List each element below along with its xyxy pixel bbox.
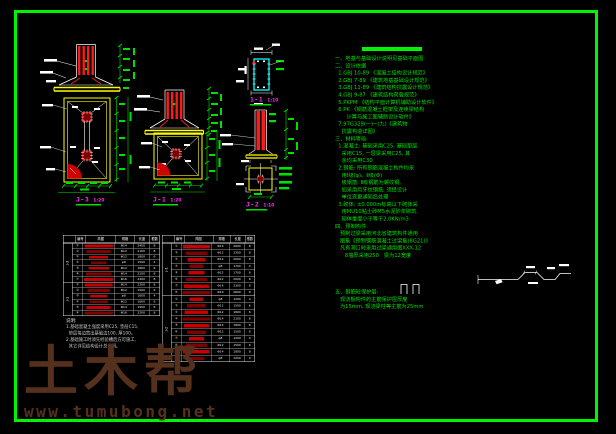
general-note-line: 5.PKPM 《结构平面计算机辅助设计软件》 — [335, 99, 505, 106]
schedule-cell: 8 — [149, 310, 160, 315]
general-note-line: 4.GBJ 9-87 《建筑结构荷载规范》 — [335, 91, 505, 98]
general-note-line: 2.GBJ 7-89 《建筑地基基础设计规范》 — [335, 77, 505, 84]
rebar-bar — [85, 284, 113, 287]
rebar-bar — [190, 298, 203, 301]
drawing-scale-text: 1:20 — [93, 198, 104, 203]
drawing-scale-text: 1:10 — [267, 98, 278, 103]
rebar-bar — [182, 291, 210, 294]
general-note-line — [335, 274, 505, 281]
general-note-line: 砌体重度小于等于2.0KN/m3 — [335, 216, 505, 223]
drawing-sheet: 一、地基与基础设计说明见基础平面图二、设计依据 1.GBJ 10-89 《混凝土… — [0, 0, 616, 434]
schedule-header-cell — [163, 236, 175, 243]
general-note-line: 五、钢筋砼保护层: — [335, 289, 505, 296]
rebar-bar — [89, 300, 108, 303]
general-note-line: 1.混凝土: 基础采用C25, 基础垫层 — [335, 143, 505, 150]
rebar-bar — [88, 267, 109, 270]
label-underline — [250, 104, 271, 106]
schedule-row: ⑥Φ1622008 — [73, 310, 160, 316]
label-underline — [246, 209, 267, 211]
rebar-bar — [184, 284, 209, 287]
watermark: 土木帮 www.tumubong.net — [24, 344, 218, 421]
j1-plan-drawing — [139, 131, 221, 192]
rebar-bar — [89, 256, 108, 259]
schedule-header-cell — [64, 236, 76, 243]
rebar-bar — [188, 271, 204, 274]
label-underline — [76, 204, 101, 206]
schedule-header-row: 编号简图规格长度根数 — [64, 236, 160, 244]
general-note-line: 8墙厚采用250 梁为12宽度 — [335, 252, 505, 259]
schedule-row: ⑤Φ1217006 — [172, 269, 255, 276]
schedule-group-label-text: J-1 — [66, 297, 70, 301]
schedule-cell: Φ16 — [114, 310, 133, 315]
schedule-header-cell: 编号 — [174, 236, 184, 243]
rebar-bar — [183, 245, 210, 248]
general-note-line: 四、预制构件: — [335, 223, 505, 230]
general-note-line: 采用C15, 一层梁采用C25, 其 — [335, 150, 505, 157]
rebar-sketch-cell — [83, 310, 115, 315]
section-1-1-detail — [236, 44, 284, 96]
rebar-bar — [187, 304, 205, 307]
general-note-line: 用MU10粘土砖M5水泥砂浆砌筑, — [335, 208, 505, 215]
general-note-line: 级钢筋, Ⅱ级钢筋为螺纹钢, — [335, 179, 505, 186]
rebar-bar — [188, 258, 206, 261]
schedule-header-cell: 编号 — [75, 236, 85, 243]
rebar-bar — [86, 250, 110, 253]
schedule-header-cell: 长度 — [230, 236, 245, 243]
schedule-row: ④φ817004 — [172, 263, 255, 270]
schedule-cell: 2200 — [133, 310, 149, 315]
schedule-group: J-1①Φ1422008②Φ1219006③φ816004④Φ1216006⑤Φ… — [64, 282, 160, 316]
schedule-row: ③Φ1220006 — [172, 256, 255, 263]
rebar-bar — [86, 272, 111, 275]
drawing-label-text: J-3 — [76, 196, 89, 204]
drawing-label-j2: J-21:10 — [246, 201, 348, 220]
general-note-line: 现浇板构件的主筋保护层厚度 — [335, 296, 505, 303]
rebar-bar — [91, 261, 107, 264]
general-note-line: 余均采用C30 — [335, 157, 505, 164]
rebar-bar — [84, 245, 113, 248]
drawing-scale-text: 1:10 — [263, 203, 274, 208]
general-note-line: 6.PK 《钢筋混凝土框架及连续梁结构 — [335, 106, 505, 113]
schedule-row: ②Φ1223008 — [172, 250, 255, 257]
notes-title-bar — [362, 47, 422, 51]
schedule-row: ③Φ1218006 — [172, 309, 255, 316]
schedule-group-label-text: J-3 — [66, 261, 70, 265]
general-notes-block: 一、地基与基础设计说明见基础平面图二、设计依据 1.GBJ 10-89 《混凝土… — [335, 55, 495, 434]
rebar-bar — [189, 265, 203, 268]
schedule-header-cell: 长度 — [134, 236, 149, 243]
general-note-line: 抗震构造详图》 — [335, 128, 505, 135]
watermark-brand: 土木帮 — [24, 344, 218, 400]
general-note-line: 一、地基与基础设计说明见基础平面图 — [335, 55, 505, 62]
rebar-bar — [86, 306, 110, 309]
schedule-header-row: 编号简图规格长度根数 — [163, 236, 255, 244]
rebar-bar — [186, 278, 207, 281]
drawing-label-text: J-2 — [246, 201, 259, 209]
rebar-bar — [90, 295, 107, 298]
schedule-row: ⑥Φ1220006 — [172, 276, 255, 283]
schedule-header-cell: 规格 — [116, 236, 134, 243]
schedule-header-cell: 规格 — [213, 236, 230, 243]
general-note-line: 预制过梁采用河北省建筑构件通用 — [335, 230, 505, 237]
general-note-line: 二、设计依据 — [335, 62, 505, 69]
general-note-line: 7.97G329(一)~(九)《建筑物 — [335, 121, 505, 128]
general-note-line: 用Ⅰ级(φ)、Ⅱ级(Φ) — [335, 172, 505, 179]
general-note-line: 3.砌体: ±0.000m标高以下砌体采 — [335, 201, 505, 208]
j3-section-drawing — [40, 44, 135, 91]
drawing-label-text: 1-1 — [250, 96, 263, 104]
schedule-group: J-1①Φ1426008②Φ1223008③Φ1220006④φ817004⑤Φ… — [163, 243, 255, 296]
general-note-line: 计算与施工图辅助设计软件》 — [335, 113, 505, 120]
schedule-header-cell: 简图 — [184, 236, 213, 243]
general-note-line: 为15mm, 现浇梁柱等主筋为25mm — [335, 303, 505, 310]
general-note-line: 图集《预制钢筋混凝土过梁集(8G21)》 — [335, 237, 505, 244]
rebar-bar — [84, 312, 113, 315]
schedule-group: J-3①Φ1424008②Φ1221008③Φ1218006④φ815004⑤Φ… — [64, 243, 160, 282]
rebar-bar — [185, 311, 209, 314]
schedule-group-label: J-1 — [64, 283, 73, 316]
schedule-header-cell: 根数 — [245, 236, 255, 243]
label-underline — [153, 204, 178, 206]
general-note-line — [335, 281, 505, 288]
j3-plan-drawing — [40, 96, 132, 193]
general-note-line: 3.GBJ 11-89 《建筑结构抗震设计规范》 — [335, 84, 505, 91]
schedule-group-label-text: J-1 — [165, 267, 169, 271]
general-note-line: 单位变更通知后处理 — [335, 194, 505, 201]
schedule-group-label: J-3 — [64, 244, 73, 283]
rebar-bar — [185, 251, 207, 254]
rebar-bar — [87, 289, 109, 292]
drawing-scale-text: 1:20 — [170, 198, 181, 203]
general-note-line: 1.GBJ 10-89 《混凝土结构设计规范》 — [335, 70, 505, 77]
rebar-bar — [84, 278, 113, 281]
watermark-site-url: www.tumubong.net — [24, 402, 218, 421]
j2-plan-detail — [236, 160, 292, 199]
drawing-label-s11: 1-11:10 — [250, 96, 352, 115]
schedule-header-cell: 简图 — [85, 236, 115, 243]
schedule-cell: ⑥ — [73, 310, 83, 315]
schedule-header-cell: 根数 — [149, 236, 159, 243]
drawing-label-text: J-1 — [153, 196, 166, 204]
general-note-line: 三、材料等级: — [335, 135, 505, 142]
general-note-line: 如采用月牙纹钢筋, 须经设计 — [335, 186, 505, 193]
general-note-line — [335, 267, 505, 274]
general-note-line: 凡有洞口时采用过梁通用图XXX-12 — [335, 245, 505, 252]
schedule-group-label: J-1 — [163, 244, 172, 296]
schedule-row: ⑦Φ1423008 — [172, 283, 255, 290]
general-note-line: 2.钢筋: 所有钢筋混凝土构件均采 — [335, 164, 505, 171]
general-note-line — [335, 259, 505, 266]
schedule-row: ②Φ1215006 — [172, 302, 255, 309]
j1-section-drawing — [134, 87, 222, 137]
